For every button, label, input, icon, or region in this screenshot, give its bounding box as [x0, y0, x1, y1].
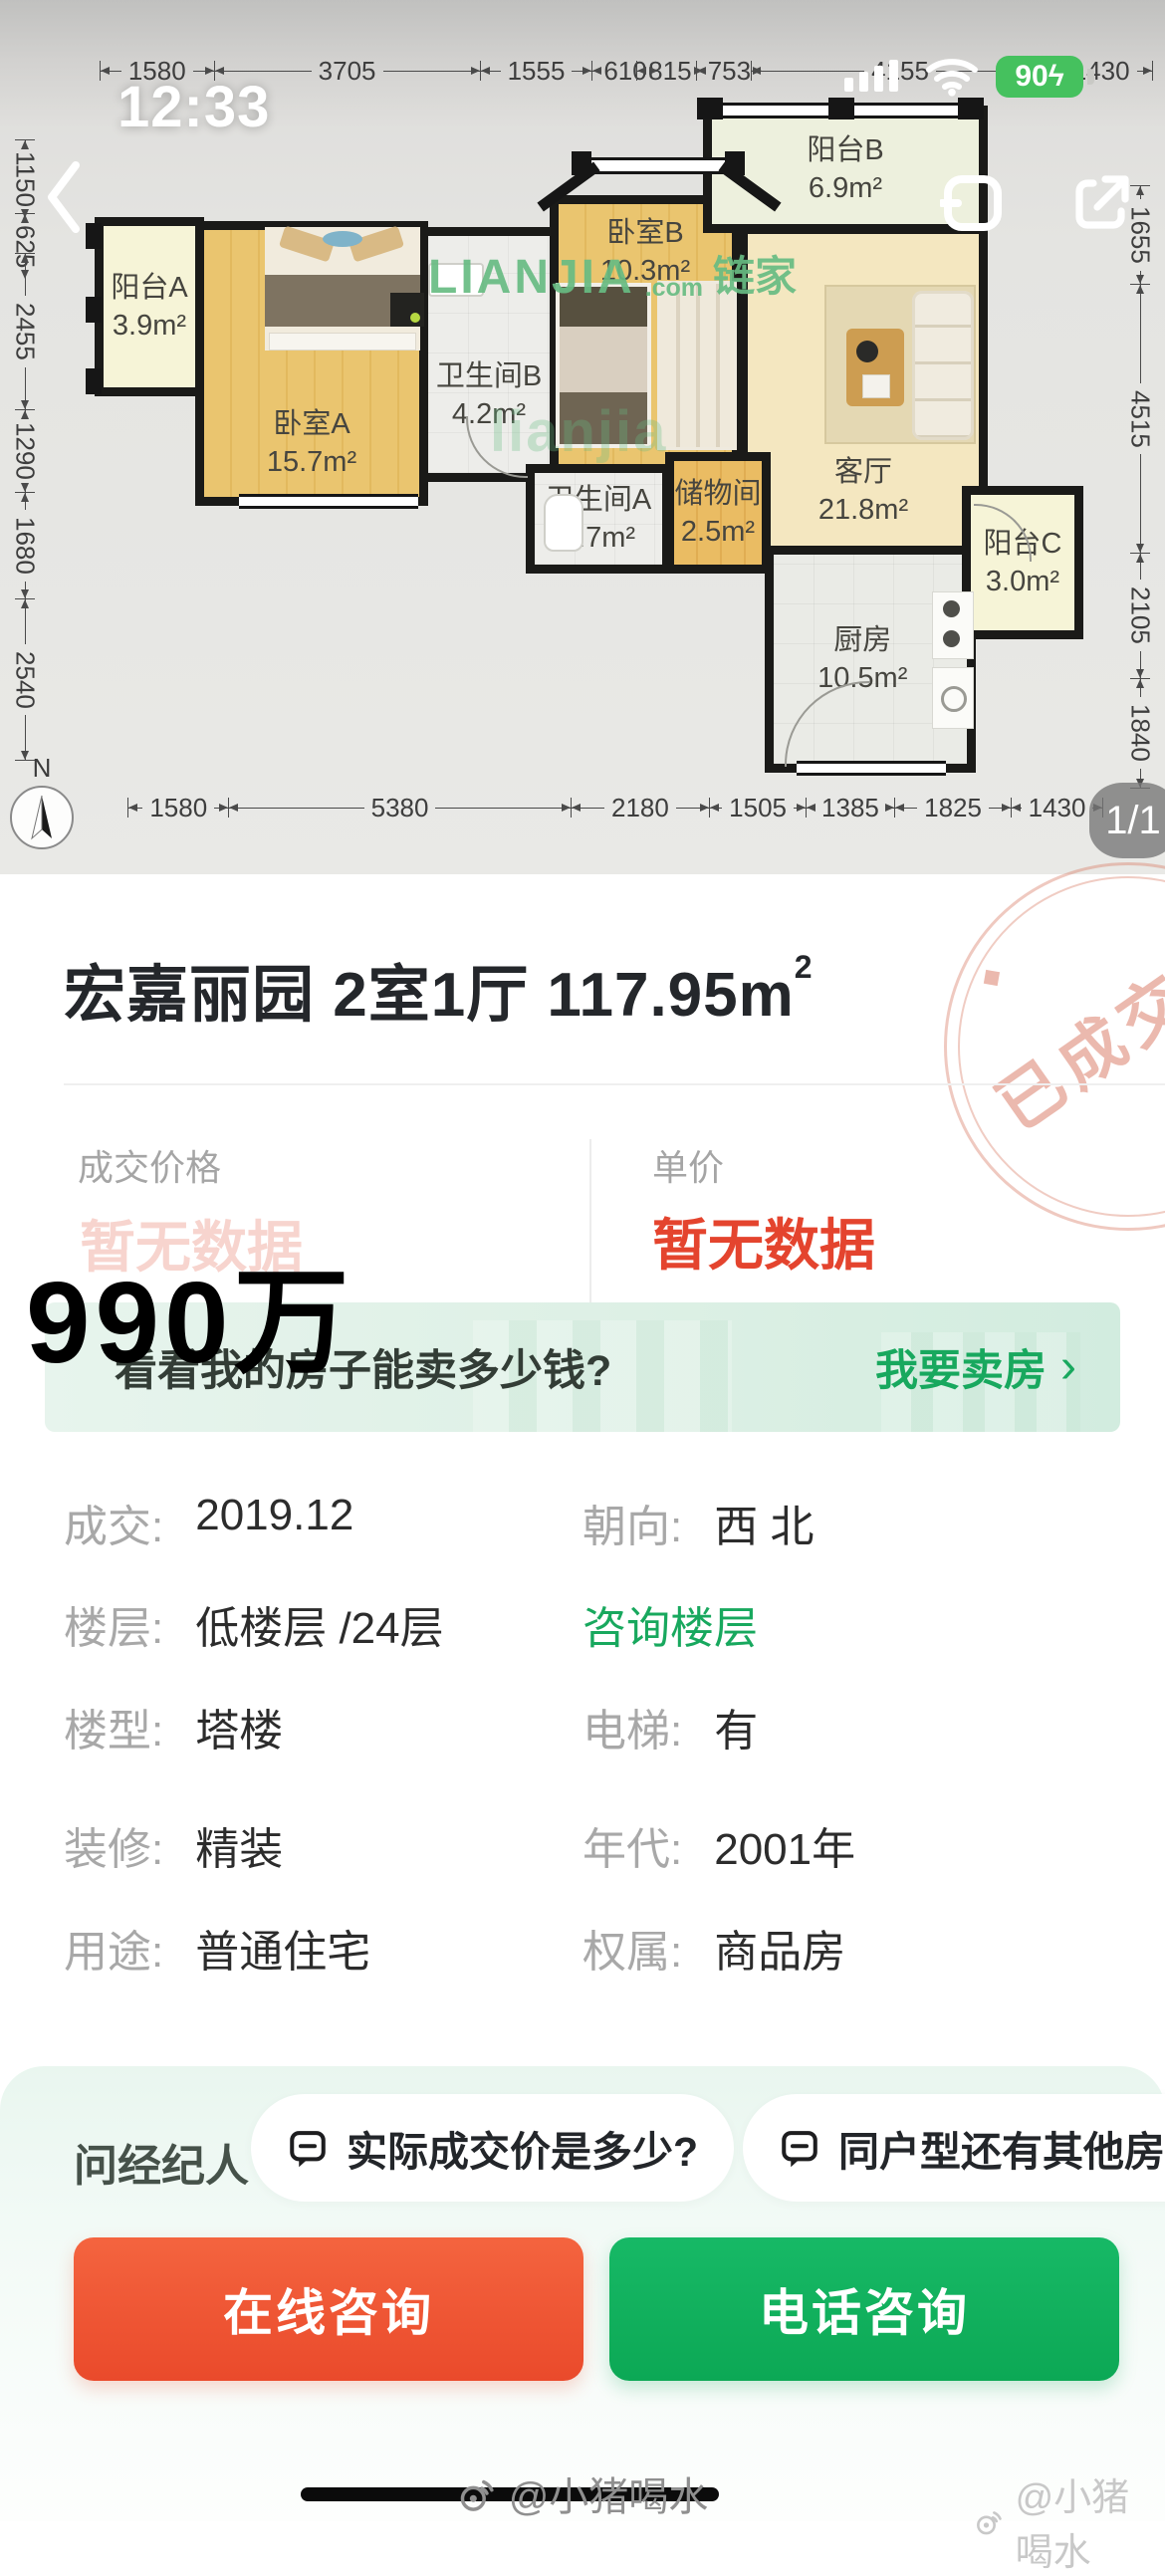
dim-line	[25, 582, 26, 598]
battery-nub	[1087, 69, 1094, 85]
wall-pillar	[828, 98, 854, 119]
dimension-segment: 753	[696, 61, 751, 81]
dim-line	[572, 808, 604, 809]
wall-pillar	[572, 151, 591, 175]
dim-line	[25, 214, 26, 218]
lianjia-watermark: LIANJIA .com 链家	[428, 243, 797, 305]
wall-pillar	[86, 297, 102, 323]
detail-year: 年代:2001年	[582, 1813, 855, 1877]
watermark-tld: .com	[645, 274, 703, 305]
dim-label: 1505	[722, 793, 794, 823]
dim-label: 2180	[604, 793, 676, 823]
burner	[943, 600, 960, 617]
dim-line	[229, 808, 363, 809]
online-consult-label: 在线咨询	[223, 2273, 434, 2345]
nightstand	[390, 293, 424, 327]
dim-line	[214, 808, 228, 809]
dim-line	[25, 493, 26, 510]
online-consult-button[interactable]: 在线咨询	[74, 2237, 583, 2381]
wall-pillar	[697, 98, 723, 119]
dim-line	[654, 71, 658, 72]
dim-line	[1140, 186, 1141, 199]
overlay-price-annotation: 990万	[26, 1229, 354, 1396]
battery-icon: 90ϟ	[996, 56, 1083, 98]
dim-line	[710, 808, 722, 809]
dim-label: 1555	[501, 56, 573, 87]
dim-line	[1140, 271, 1141, 284]
detail-ownership: 权属:商品房	[582, 1916, 845, 1980]
dimension-segment: 1385	[806, 798, 894, 818]
bay-window-band	[582, 157, 737, 174]
stamp-diamond: ◆	[974, 958, 1008, 995]
dimension-column-left: 11506252455129016802540	[12, 139, 38, 761]
battery-bolt-icon: ϟ	[1048, 60, 1064, 94]
signal-bar	[874, 66, 883, 92]
page-indicator-text: 1/1	[1105, 799, 1161, 843]
dim-line	[592, 71, 596, 72]
detail-elevator: 电梯:有	[582, 1695, 758, 1758]
dimension-segment: 2180	[571, 798, 710, 818]
detail-floor: 楼层:低楼层 /24层	[64, 1592, 444, 1656]
deal-price-label: 成交价格	[78, 1139, 221, 1191]
consult-floor-link[interactable]: 咨询楼层	[582, 1592, 758, 1656]
north-compass: N	[10, 753, 74, 849]
back-chevron-icon[interactable]	[44, 159, 84, 235]
dim-line	[481, 71, 501, 72]
sofa	[912, 291, 974, 440]
dimension-segment: 815	[636, 61, 696, 81]
dim-line	[886, 808, 894, 809]
signal-bar	[859, 72, 868, 92]
divider	[64, 1083, 1165, 1085]
right-watermark: @小猪喝水	[974, 2466, 1165, 2576]
dim-line	[25, 410, 26, 415]
floorplan-photo[interactable]: 12:33 90ϟ 15803705155561081575341551430 …	[0, 0, 1165, 874]
dim-line	[676, 808, 709, 809]
dim-line	[572, 71, 591, 72]
dimension-segment: 1505	[709, 798, 806, 818]
dimension-segment: 5380	[228, 798, 570, 818]
chip-actual-price[interactable]: 实际成交价是多少?	[251, 2094, 734, 2202]
chip-label: 实际成交价是多少?	[347, 2118, 698, 2178]
dim-line	[637, 71, 641, 72]
dim-label: 5380	[364, 793, 436, 823]
dim-line	[1140, 679, 1141, 698]
signal-bar	[889, 60, 898, 92]
sell-house-action-label: 我要卖房	[875, 1336, 1047, 1398]
dim-label: 1150	[10, 144, 41, 214]
phone-consult-button[interactable]: 电话咨询	[609, 2237, 1119, 2381]
bottom-sheet: 问经纪人 实际成交价是多少? 同户型还有其他房源 在线咨询 电话咨询 @小猪喝水	[0, 2066, 1165, 2521]
dim-line	[1140, 651, 1141, 678]
watermark-handle: @小猪喝水	[1016, 2466, 1165, 2576]
weibo-icon	[457, 2472, 499, 2514]
dimension-segment: 610	[591, 61, 636, 81]
dim-line	[1140, 285, 1141, 382]
dim-label: 2105	[1125, 580, 1156, 651]
watermark-brand: LIANJIA	[428, 250, 635, 305]
compass-circle	[10, 786, 74, 849]
dim-label: 3705	[312, 56, 383, 87]
dim-line	[25, 599, 26, 644]
room-label: 阳台B6.9m²	[807, 131, 883, 207]
save-icon[interactable]	[940, 173, 1006, 233]
burner	[943, 630, 960, 647]
dim-label: 2455	[10, 296, 41, 367]
price-divider	[589, 1139, 591, 1308]
detail-decoration: 装修:精装	[64, 1813, 283, 1877]
sink-basin	[941, 686, 967, 712]
north-label: N	[10, 753, 74, 784]
dimension-segment: 625	[15, 213, 35, 254]
lamp-dot	[410, 313, 420, 323]
lianjia-watermark-faint: lianjia	[490, 398, 667, 465]
phone-consult-label: 电话咨询	[759, 2273, 970, 2345]
dim-line	[128, 808, 142, 809]
dim-label: 2540	[10, 644, 41, 716]
dim-line	[25, 140, 26, 144]
dimension-segment: 1290	[15, 409, 35, 492]
dim-line	[25, 254, 26, 296]
dim-line	[101, 71, 121, 72]
stamp-text: 已成交	[974, 944, 1165, 1149]
bed-bench	[269, 333, 416, 351]
window-band	[239, 494, 418, 509]
wall-pillar	[86, 368, 102, 394]
room-storage: 储物间2.5m²	[665, 452, 771, 574]
dim-line	[697, 71, 701, 72]
chevron-right-icon: ›	[1060, 1343, 1076, 1391]
dim-label: 1840	[1125, 697, 1156, 769]
dim-label: 1290	[10, 415, 41, 487]
chat-bubble-icon	[287, 2127, 329, 2169]
dimension-segment: 1555	[480, 61, 592, 81]
dim-line	[1140, 454, 1141, 552]
status-time: 12:33	[117, 74, 270, 140]
dim-line	[215, 71, 312, 72]
room-balcony-a: 阳台A3.9m²	[95, 217, 204, 396]
dim-label: 1385	[815, 793, 886, 823]
dim-label: 1580	[142, 793, 214, 823]
dim-label: 753	[701, 56, 758, 87]
dimension-segment: 2540	[15, 598, 35, 761]
chip-label: 同户型还有其他房源	[838, 2118, 1165, 2178]
dim-line	[1140, 554, 1141, 581]
watermark-handle: @小猪喝水	[509, 2464, 709, 2522]
signal-bar	[844, 78, 853, 92]
stove	[932, 591, 974, 659]
dim-label: 4515	[1125, 383, 1156, 455]
share-icon[interactable]	[1073, 175, 1133, 231]
pillow-round	[323, 231, 362, 247]
dimension-segment: 1680	[15, 492, 35, 598]
sell-house-action[interactable]: 我要卖房 ›	[875, 1336, 1076, 1398]
dimension-segment: 1840	[1130, 678, 1150, 789]
room-label: 储物间2.5m²	[674, 475, 761, 551]
dim-line	[807, 808, 815, 809]
detail-building-type: 楼型:塔楼	[64, 1695, 283, 1758]
dimension-segment: 1825	[894, 798, 1011, 818]
dimension-segment: 2105	[1130, 553, 1150, 678]
dimension-row-bottom: 1580538021801505138518251430	[127, 795, 1103, 820]
watermark-faint-text: lianjia	[490, 399, 667, 464]
kettle	[856, 341, 878, 362]
dimension-segment: 1580	[127, 798, 228, 818]
room-label: 阳台A3.9m²	[111, 269, 187, 345]
dim-line	[989, 808, 1011, 809]
chat-bubble-icon	[779, 2127, 820, 2169]
dim-line	[794, 808, 806, 809]
dimension-segment: 1150	[15, 139, 35, 213]
wall-pillar	[86, 223, 102, 249]
dim-line	[435, 808, 570, 809]
page-indicator-badge: 1/1	[1089, 783, 1165, 858]
room-label: 客厅21.8m²	[818, 453, 908, 529]
detail-usage: 用途:普通住宅	[64, 1916, 370, 1980]
dim-label: 1680	[10, 510, 41, 582]
bed-a	[265, 227, 420, 351]
dim-line	[193, 71, 214, 72]
dimension-segment: 1655	[1130, 185, 1150, 284]
wifi-icon	[924, 56, 980, 98]
wall-pillar	[725, 151, 745, 175]
room-label: 卧室A15.7m²	[267, 405, 356, 481]
weibo-icon	[974, 2501, 1006, 2541]
dimension-column-right: 1655451521051840	[1127, 185, 1153, 789]
deal-done-stamp: 已成交 ◆ ◆	[944, 862, 1165, 1231]
title-superscript: 2	[795, 949, 814, 985]
detail-deal-date: 成交:2019.12	[64, 1491, 353, 1554]
ask-agent-label: 问经纪人	[74, 2130, 249, 2194]
dim-label: 1825	[917, 793, 989, 823]
unit-price-value: 暂无数据	[652, 1201, 875, 1282]
dim-label: 1430	[1022, 793, 1093, 823]
dim-line	[895, 808, 917, 809]
chip-other-listings[interactable]: 同户型还有其他房源	[743, 2094, 1165, 2202]
dimension-segment: 2455	[15, 253, 35, 409]
unit-price-label: 单价	[652, 1139, 724, 1191]
signal-strength-icon	[844, 60, 898, 92]
dim-line	[25, 487, 26, 492]
toilet	[544, 494, 583, 552]
compass-needle-icon	[31, 795, 53, 840]
dimension-segment: 4515	[1130, 284, 1150, 552]
wardrobe	[657, 281, 737, 450]
center-watermark: @小猪喝水	[457, 2464, 709, 2522]
wall-pillar	[958, 98, 984, 119]
watermark-cn: 链家	[713, 243, 797, 305]
dim-line	[25, 367, 26, 409]
kitchen-sink	[932, 667, 974, 729]
dim-line	[1137, 71, 1152, 72]
dim-line	[383, 71, 480, 72]
coffee-table	[846, 329, 904, 406]
dim-line	[1012, 808, 1022, 809]
battery-percent: 90	[1015, 60, 1048, 94]
tray	[862, 374, 890, 398]
listing-title: 宏嘉丽园 2室1厅 117.95m2	[64, 944, 814, 1034]
detail-orientation: 朝向:西 北	[582, 1491, 814, 1554]
